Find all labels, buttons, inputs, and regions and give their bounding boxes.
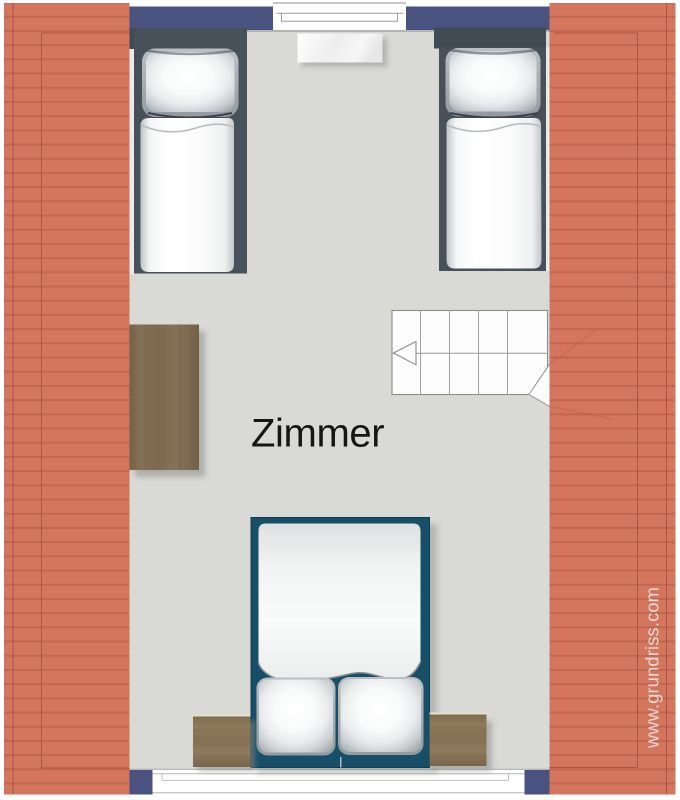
svg-text:www.grundriss.com: www.grundriss.com	[643, 587, 663, 749]
svg-text:Zimmer: Zimmer	[251, 412, 384, 456]
